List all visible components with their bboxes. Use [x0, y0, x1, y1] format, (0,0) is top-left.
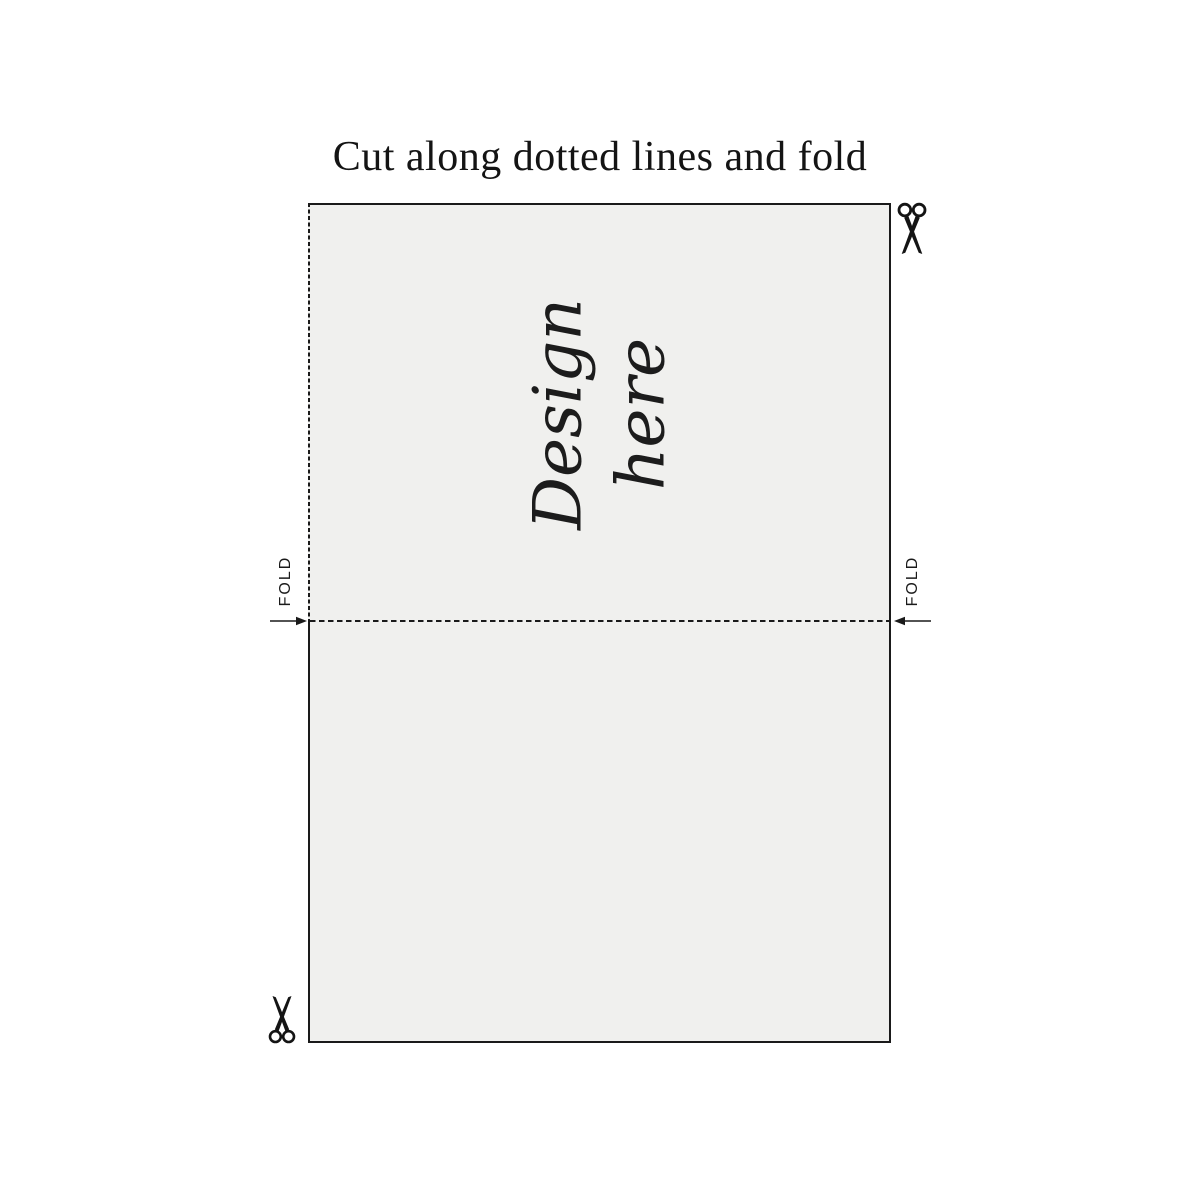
fold-arrow-right-icon [269, 615, 307, 627]
cut-edge-right [889, 203, 891, 1043]
cut-edge-left-dotted [308, 203, 310, 621]
fold-line [310, 620, 889, 622]
design-placeholder: Design here [518, 298, 683, 530]
cut-edge-top [308, 203, 891, 205]
cut-edge-left-solid [308, 621, 310, 1043]
scissors-icon [896, 202, 928, 254]
scissors-icon [268, 996, 296, 1044]
design-placeholder-line1: Design [518, 298, 601, 530]
template-page: Cut along dotted lines and fold Design h… [0, 0, 1200, 1200]
page-title: Cut along dotted lines and fold [0, 134, 1200, 180]
card-template: Design here [308, 203, 891, 1043]
design-placeholder-line2: here [600, 298, 683, 530]
fold-label-left: FOLD [277, 556, 295, 607]
fold-arrow-left-icon [894, 615, 932, 627]
cut-edge-bottom [308, 1041, 891, 1043]
fold-label-right: FOLD [904, 556, 922, 607]
